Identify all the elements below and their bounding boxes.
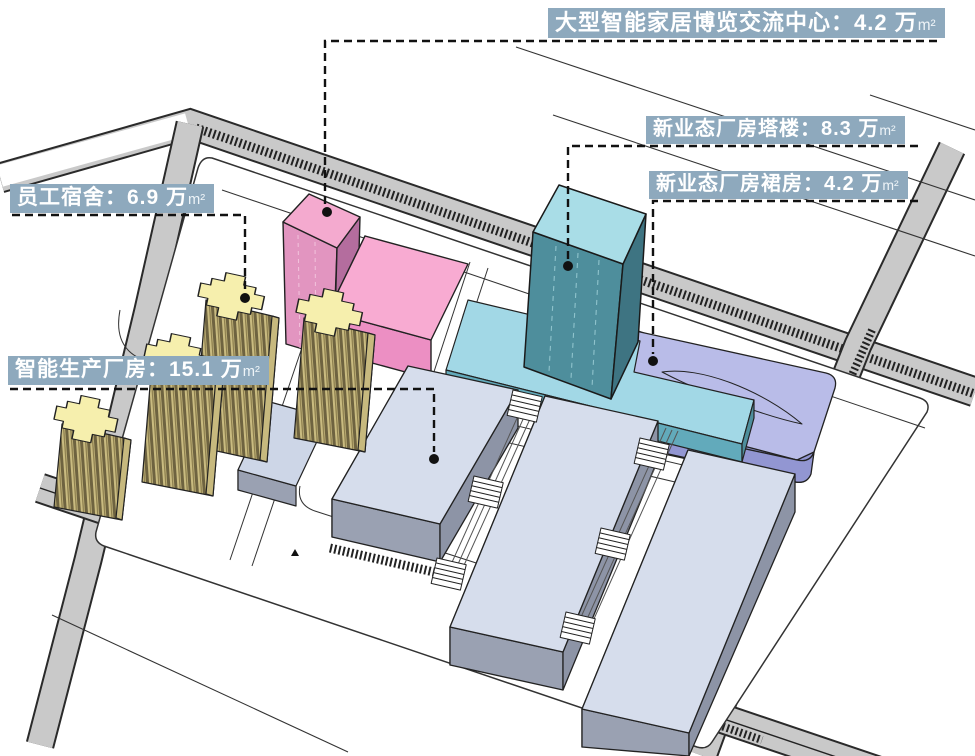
- label-new-industry-tower-text: 新业态厂房塔楼：8.3 万: [653, 118, 879, 140]
- site-massing-diagram: 大型智能家居博览交流中心：4.2 万m² 新业态厂房塔楼：8.3 万m² 新业态…: [0, 0, 975, 756]
- label-new-industry-podium-unit: m²: [882, 177, 898, 193]
- dot-new-industry-tower: [563, 261, 573, 271]
- label-expo-center-unit: m²: [918, 17, 936, 34]
- dot-dormitory: [240, 293, 250, 303]
- label-dormitory-text: 员工宿舍：6.9 万: [17, 186, 188, 209]
- dot-new-industry-podium: [648, 356, 658, 366]
- label-new-industry-tower: 新业态厂房塔楼：8.3 万m²: [646, 116, 905, 144]
- label-factory-text: 智能生产厂房：15.1 万: [15, 358, 243, 381]
- label-dormitory-unit: m²: [188, 192, 205, 208]
- label-factory-unit: m²: [243, 364, 260, 380]
- dot-expo-center: [322, 207, 332, 217]
- dot-factory: [429, 454, 439, 464]
- label-expo-center: 大型智能家居博览交流中心：4.2 万m²: [548, 8, 945, 38]
- label-expo-center-text: 大型智能家居博览交流中心：4.2 万: [555, 10, 918, 35]
- label-new-industry-tower-unit: m²: [879, 122, 895, 138]
- label-factory: 智能生产厂房：15.1 万m²: [8, 356, 269, 385]
- label-new-industry-podium: 新业态厂房裙房：4.2 万m²: [649, 171, 908, 199]
- label-dormitory: 员工宿舍：6.9 万m²: [10, 184, 214, 213]
- label-new-industry-podium-text: 新业态厂房裙房：4.2 万: [656, 173, 882, 195]
